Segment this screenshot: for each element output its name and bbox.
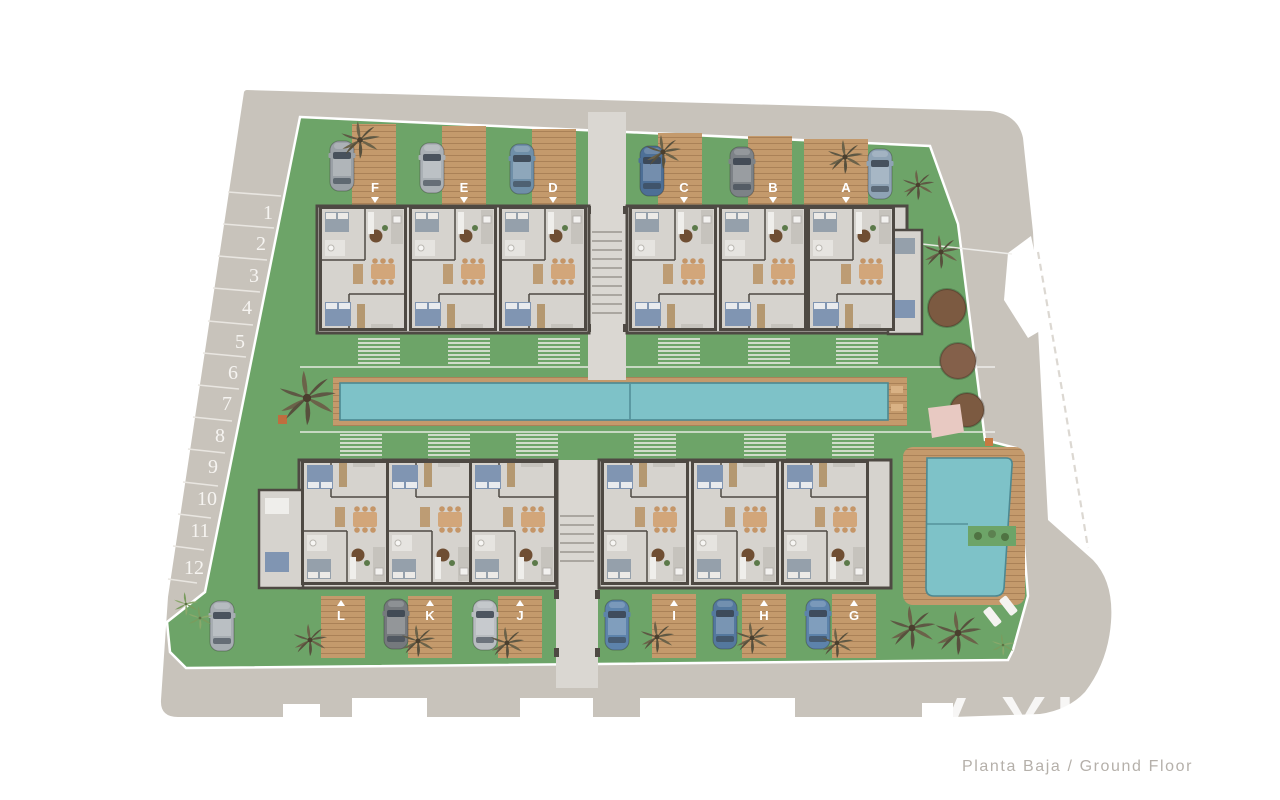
unit-label: K	[425, 608, 435, 623]
stall-number: 11	[190, 520, 209, 542]
plant-icon	[1001, 533, 1009, 541]
unit-label: I	[672, 608, 676, 623]
stall-number: 1	[263, 202, 273, 224]
round-tree-icon	[940, 343, 976, 379]
unit-label: J	[516, 608, 523, 623]
plan-caption: Planta Baja / Ground Floor	[962, 758, 1262, 776]
unit-label: F	[371, 180, 379, 195]
watermark-text: VI	[1002, 690, 1085, 730]
unit-label: A	[841, 180, 851, 195]
central-walkway-top	[586, 112, 628, 380]
round-tree-icon	[928, 289, 966, 327]
unit-label: C	[679, 180, 689, 195]
stall-number: 2	[256, 233, 266, 255]
plant-icon	[988, 530, 996, 538]
plant-icon	[974, 532, 982, 540]
site-plan-drawing: VI 1 2 3 4 5 6 7 8 9 10 11 12	[0, 0, 1280, 800]
garden-table	[985, 438, 993, 446]
unit-label: L	[337, 608, 345, 623]
floor-plan-page: VI 1 2 3 4 5 6 7 8 9 10 11 12	[0, 0, 1280, 800]
picnic-patch	[928, 404, 964, 438]
stall-number: 4	[242, 297, 252, 319]
stall-number: 9	[208, 456, 218, 478]
unit-label: H	[759, 608, 768, 623]
central-walkway-bottom	[554, 460, 600, 688]
pool-water	[340, 383, 888, 420]
unit-label: B	[768, 180, 777, 195]
sofa	[265, 498, 289, 514]
bed	[893, 238, 915, 254]
stall-number: 6	[228, 362, 238, 384]
stall-number: 10	[197, 488, 217, 510]
bed	[893, 300, 915, 318]
unit-label: G	[849, 608, 859, 623]
pool-bench	[891, 404, 903, 411]
stall-number: 5	[235, 331, 245, 353]
bed	[265, 552, 289, 572]
unit-label: E	[460, 180, 469, 195]
plunge-pool	[903, 447, 1025, 605]
stall-number: 8	[215, 425, 225, 447]
unit-label: D	[548, 180, 557, 195]
lap-pool	[333, 377, 907, 426]
stall-number: 7	[222, 393, 232, 415]
stall-number: 3	[249, 265, 259, 287]
stall-number: 12	[184, 557, 204, 579]
garden-bench	[278, 415, 287, 424]
pool-bench	[891, 386, 903, 393]
